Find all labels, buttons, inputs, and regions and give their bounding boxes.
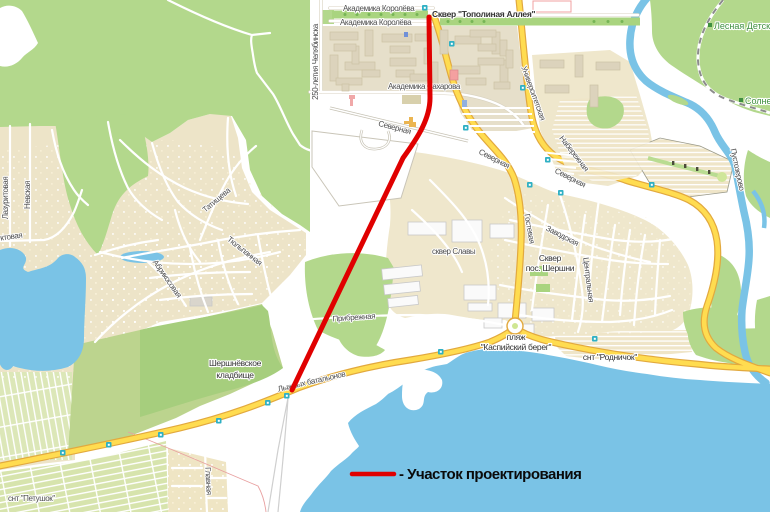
svg-text:пляж: пляж [507,332,526,342]
svg-text:Солнеч: Солнеч [745,96,770,106]
svg-text:Лесная Детская ж: Лесная Детская ж [714,21,770,31]
svg-text:Лазуритовая: Лазуритовая [1,177,10,220]
svg-text:сквер Славы: сквер Славы [432,247,476,256]
svg-text:Академика Королёва: Академика Королёва [340,18,412,27]
svg-text:"Каспийский берег": "Каспийский берег" [481,342,552,352]
svg-text:Академика Королёва: Академика Королёва [343,4,415,13]
svg-text:- Участок проектирования: - Участок проектирования [399,466,581,483]
svg-text:Академика Сахарова: Академика Сахарова [388,82,461,91]
svg-text:Сквер: Сквер [539,253,562,263]
svg-text:снт "Родничок": снт "Родничок" [583,352,637,362]
svg-text:снт "Петушок": снт "Петушок" [8,494,55,503]
svg-text:Главная: Главная [203,467,213,495]
svg-text:пос. Шершни: пос. Шершни [526,263,575,273]
svg-text:250-летия Челябинска: 250-летия Челябинска [311,23,320,100]
svg-text:кладбище: кладбище [216,370,254,380]
svg-text:Шершнёвское: Шершнёвское [209,358,262,368]
svg-text:Невская: Невская [23,181,32,209]
svg-text:Сквер "Тополиная Аллея": Сквер "Тополиная Аллея" [432,9,536,19]
